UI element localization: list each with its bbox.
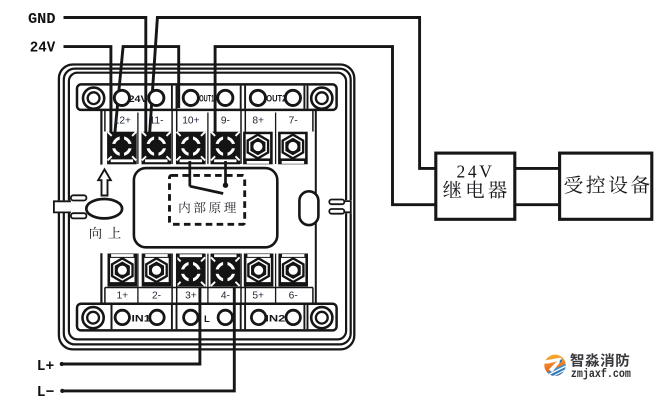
svg-text:L+: L+ bbox=[37, 358, 55, 375]
svg-text:7-: 7- bbox=[289, 116, 298, 127]
svg-text:1+: 1+ bbox=[116, 291, 128, 302]
svg-text:IN1: IN1 bbox=[132, 313, 151, 324]
svg-text:L: L bbox=[204, 314, 210, 325]
svg-text:L−: L− bbox=[37, 384, 55, 401]
svg-text:2-: 2- bbox=[152, 291, 161, 302]
svg-text:4-: 4- bbox=[221, 291, 230, 302]
svg-text:8+: 8+ bbox=[252, 116, 264, 127]
svg-text:24V: 24V bbox=[457, 162, 495, 182]
svg-text:OUT2: OUT2 bbox=[266, 94, 286, 104]
svg-text:24V: 24V bbox=[30, 40, 56, 57]
svg-text:OUT1: OUT1 bbox=[199, 94, 214, 104]
svg-text:IN2: IN2 bbox=[265, 313, 285, 324]
svg-text:11-: 11- bbox=[150, 116, 164, 127]
svg-text:6-: 6- bbox=[289, 291, 298, 302]
svg-text:24V: 24V bbox=[129, 94, 148, 104]
svg-text:zmjaxf.com: zmjaxf.com bbox=[571, 368, 631, 381]
svg-text:5+: 5+ bbox=[252, 291, 264, 302]
svg-text:GND: GND bbox=[28, 11, 56, 28]
svg-text:9-: 9- bbox=[221, 116, 230, 127]
svg-text:10+: 10+ bbox=[182, 116, 199, 127]
svg-text:12+: 12+ bbox=[114, 116, 131, 127]
svg-text:3+: 3+ bbox=[185, 291, 197, 302]
